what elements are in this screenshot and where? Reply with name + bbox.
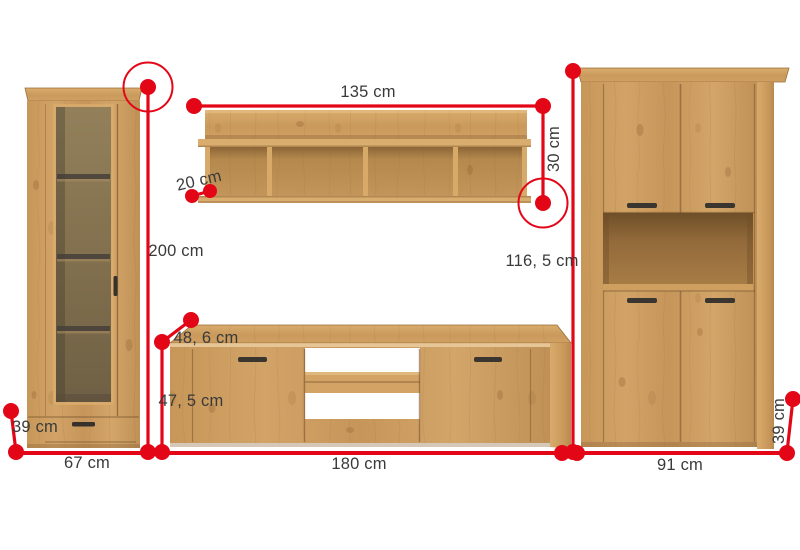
dim-label-tv-depth: 48, 6 cm	[174, 330, 239, 347]
dim-label-vitrine-height: 200 cm	[148, 243, 203, 260]
highboard-bottom-left-handle	[627, 298, 657, 303]
marker-dot	[565, 63, 581, 79]
highboard-bottom-right-handle	[705, 298, 735, 303]
marker-dot	[154, 334, 170, 350]
marker-dot	[565, 444, 581, 460]
dim-label-shelf-width: 135 cm	[340, 84, 395, 101]
marker-dot	[140, 444, 156, 460]
dim-label-tv-width: 180 cm	[331, 456, 386, 473]
vitrine-cabinet-graphic	[25, 88, 142, 448]
marker-dot	[535, 98, 551, 114]
dim-label-vitrine-width: 67 cm	[64, 455, 110, 472]
marker-dot	[8, 444, 24, 460]
vitrine-door-handle	[114, 276, 118, 296]
highboard-top-right-handle	[705, 203, 735, 208]
dim-label-highboard-height: 116, 5 cm	[505, 253, 578, 270]
marker-dot	[3, 403, 19, 419]
dim-label-highboard-width: 91 cm	[657, 457, 703, 474]
tv-stand-right-handle	[474, 357, 502, 362]
dim-label-highboard-depth: 39 cm	[771, 398, 788, 444]
highboard-graphic	[577, 68, 789, 449]
highboard-top-left-handle	[627, 203, 657, 208]
dim-label-tv-height: 47, 5 cm	[159, 393, 224, 410]
marker-dot	[183, 312, 199, 328]
marker-dot	[140, 79, 156, 95]
marker-dot	[779, 445, 795, 461]
wall-shelf-graphic	[198, 110, 531, 203]
furniture-dimensions-diagram: 135 cm 20 cm 30 cm 200 cm 39 cm 67 cm 48…	[0, 0, 800, 550]
marker-dot	[154, 444, 170, 460]
dim-label-shelf-height: 30 cm	[546, 126, 563, 172]
tv-stand-left-handle	[238, 357, 267, 362]
dim-line-highboard-depth	[787, 399, 793, 452]
dim-label-vitrine-depth: 39 cm	[12, 419, 58, 436]
vitrine-drawer-handle	[72, 422, 95, 427]
marker-dot	[535, 195, 551, 211]
marker-dot	[186, 98, 202, 114]
